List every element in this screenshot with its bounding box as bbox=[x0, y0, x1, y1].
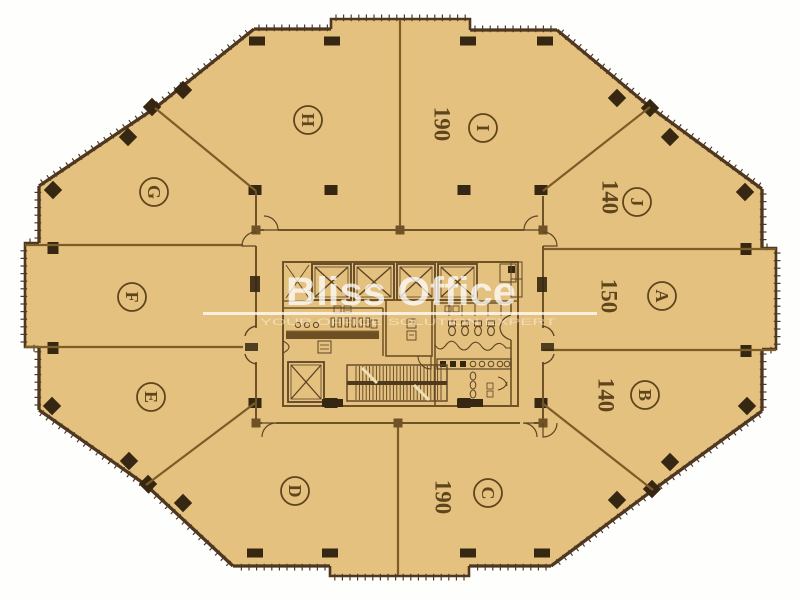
svg-text:E: E bbox=[141, 391, 161, 403]
svg-text:140: 140 bbox=[594, 378, 619, 413]
svg-text:Bliss Office: Bliss Office bbox=[286, 270, 516, 314]
svg-text:150: 150 bbox=[597, 279, 622, 314]
svg-text:D: D bbox=[285, 485, 305, 498]
svg-text:190: 190 bbox=[430, 107, 455, 142]
svg-text:I: I bbox=[473, 124, 493, 131]
svg-text:C: C bbox=[478, 487, 498, 500]
svg-text:140: 140 bbox=[598, 180, 623, 215]
svg-text:J: J bbox=[627, 198, 647, 207]
svg-text:190: 190 bbox=[431, 480, 456, 515]
svg-text:A: A bbox=[652, 290, 672, 303]
svg-text:F: F bbox=[122, 292, 142, 303]
svg-text:H: H bbox=[298, 113, 318, 127]
svg-text:B: B bbox=[635, 389, 655, 401]
svg-text:G: G bbox=[144, 185, 164, 199]
svg-text:YOUR OFFICE SOLUTION EXPERT: YOUR OFFICE SOLUTION EXPERT bbox=[260, 317, 557, 327]
